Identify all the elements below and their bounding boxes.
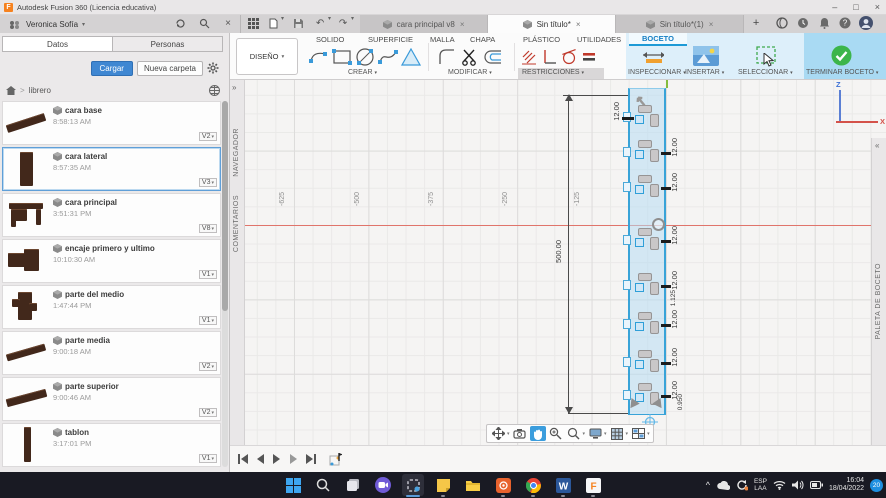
language-indicator[interactable]: ESPLAA — [754, 478, 767, 492]
search-icon[interactable] — [196, 15, 212, 31]
doc-tab-label: Sin título* — [537, 20, 571, 29]
viewcube-z-axis — [839, 90, 841, 122]
fusion360-window: F Autodesk Fusion 360 (Licencia educativ… — [0, 0, 886, 498]
version-dropdown[interactable]: V2▾ — [199, 362, 217, 371]
zoom-window-icon[interactable] — [566, 426, 582, 441]
panel-tab-navegador[interactable]: NAVEGADOR — [233, 128, 240, 177]
viewcube-x-label: X — [880, 117, 885, 126]
doc-tab-close-icon[interactable]: × — [709, 20, 714, 29]
dimension-value-bottom[interactable]: 0.950 — [677, 394, 684, 410]
restricciones-group-label[interactable]: RESTRICCIONES ▾ — [522, 69, 584, 76]
zoom-in-icon[interactable] — [548, 426, 564, 441]
version-dropdown[interactable]: V8▾ — [199, 224, 217, 233]
timeline-skip-start-button[interactable] — [236, 453, 249, 466]
caret-down-icon: ▾ — [211, 134, 214, 140]
notch-feature[interactable] — [608, 350, 674, 376]
version-dropdown[interactable]: V2▾ — [199, 132, 217, 141]
redo-icon[interactable]: ↷ — [335, 15, 351, 31]
axis-label: -250 — [502, 192, 509, 206]
dimension-value[interactable]: 12.00 — [670, 226, 679, 245]
list-item-cara-lateral[interactable]: cara lateral 8:57:35 AM V3▾ — [2, 147, 221, 191]
fusion-logo-icon: F — [4, 3, 13, 12]
user-name: Veronica Sofía — [26, 20, 78, 29]
ribbon-tab-boceto[interactable]: BOCETO — [629, 33, 687, 46]
polygon-tool-icon[interactable] — [400, 46, 422, 68]
item-time: 8:58:13 AM — [53, 117, 218, 126]
dimension-value[interactable]: 12.00 — [670, 271, 679, 290]
ribbon-tab-utilidades[interactable]: UTILIDADES — [577, 35, 621, 44]
home-icon[interactable] — [6, 86, 16, 95]
panel-scrollbar[interactable] — [222, 101, 228, 467]
undo-caret-icon[interactable]: ▾ — [328, 15, 331, 33]
taskbar-search-icon[interactable] — [312, 474, 334, 496]
ribbon-tab-plastico[interactable]: PLÁSTICO — [523, 35, 560, 44]
word-icon[interactable]: W — [552, 474, 574, 496]
panel-tab-paleta-boceto[interactable]: PALETA DE BOCETO — [875, 263, 882, 339]
component-cube-icon — [53, 428, 62, 437]
y-axis-line — [666, 80, 668, 88]
document-cube-icon — [383, 20, 392, 29]
item-name: encaje primero y ultimo — [65, 244, 155, 253]
document-cube-icon — [646, 20, 655, 29]
terminar-boceto-label[interactable]: TERMINAR BOCETO ▾ — [806, 69, 878, 76]
rectangle-tool-icon[interactable] — [331, 46, 353, 68]
doc-tab-label: cara principal v8 — [397, 20, 455, 29]
viewports-icon[interactable] — [630, 426, 646, 441]
item-name: cara lateral — [65, 152, 107, 161]
dimension-value[interactable]: 12.00 — [670, 138, 679, 157]
component-list: cara base 8:58:13 AM V2▾ cara lateral 8:… — [2, 101, 221, 469]
notch-feature[interactable] — [608, 140, 674, 166]
x-axis-line — [245, 225, 871, 226]
clock[interactable]: 16:0418/04/2022 — [829, 477, 864, 494]
close-panel-icon[interactable]: × — [220, 15, 236, 31]
constraint-perpendicular-icon[interactable] — [538, 46, 560, 68]
dimension-ext-bottom — [568, 413, 628, 414]
caret-down-icon: ▾ — [211, 318, 214, 324]
caret-down-icon: ▾ — [82, 21, 85, 28]
navigation-toolbar: ▾ ▾ ▾ ▾ ▾ — [486, 424, 654, 443]
caret-down-icon: ▾ — [489, 70, 492, 76]
list-item-tablon[interactable]: tablon 3:17:01 PM V1▾ — [2, 423, 221, 467]
minimize-button[interactable]: – — [832, 2, 837, 12]
sketch-origin-point[interactable] — [652, 218, 665, 231]
onedrive-cloud-icon[interactable] — [716, 481, 730, 490]
caret-down-icon: ▾ — [722, 70, 725, 76]
crear-group-label[interactable]: CREAR ▾ — [348, 69, 377, 76]
item-time: 3:17:01 PM — [53, 439, 218, 448]
viewcube-x-axis — [836, 121, 878, 123]
item-name: parte media — [65, 336, 110, 345]
version-dropdown[interactable]: V2▾ — [199, 408, 217, 417]
caret-down-icon: ▾ — [211, 272, 214, 278]
timeline-skip-end-button[interactable] — [304, 453, 317, 466]
timeline-play-button[interactable] — [270, 453, 283, 466]
terminar-boceto-check-icon[interactable] — [830, 44, 852, 66]
insertar-image-icon[interactable] — [693, 45, 719, 67]
list-item-parte-del-medio[interactable]: parte del medio 1:47:44 PM V1▾ — [2, 285, 221, 329]
job-status-clock-icon[interactable] — [795, 15, 811, 31]
expand-paleta-icon[interactable]: « — [875, 141, 879, 150]
file-menu-caret-icon[interactable]: ▾ — [281, 15, 284, 33]
undo-icon[interactable]: ↶ — [312, 15, 328, 31]
item-name: cara base — [65, 106, 102, 115]
component-cube-icon — [53, 290, 62, 299]
file-menu-icon[interactable] — [265, 15, 281, 31]
cargar-button[interactable]: Cargar — [91, 61, 133, 76]
extensions-icon[interactable] — [774, 15, 790, 31]
item-time: 9:00:46 AM — [53, 393, 218, 402]
doc-tab-cara-principal[interactable]: cara principal v8 × — [360, 15, 488, 33]
app-header-bar: Veronica Sofía ▾ × ▾ ↶ ▾ ↷ ▾ cara princi… — [0, 15, 886, 33]
avatar[interactable] — [858, 15, 874, 31]
display-settings-icon[interactable] — [587, 426, 603, 441]
nueva-carpeta-button[interactable]: Nueva carpeta — [137, 61, 203, 76]
maximize-button[interactable]: □ — [853, 2, 858, 12]
item-thumbnail — [3, 194, 51, 236]
ribbon-tab-malla[interactable]: MALLA — [430, 35, 455, 44]
caret-down-icon: ▾ — [582, 70, 585, 76]
item-thumbnail — [3, 240, 51, 282]
svg-text:?: ? — [843, 19, 848, 28]
circle-tool-icon[interactable] — [354, 46, 376, 68]
snipping-tool-icon[interactable] — [402, 474, 424, 496]
tab-personas[interactable]: Personas — [112, 37, 222, 51]
chat-app-icon[interactable] — [372, 474, 394, 496]
panel-tab-comentarios[interactable]: COMENTARIOS — [233, 195, 240, 252]
list-item-cara-principal[interactable]: cara principal 3:51:31 PM V8▾ — [2, 193, 221, 237]
version-dropdown[interactable]: V1▾ — [199, 454, 217, 463]
caret-down-icon: ▾ — [211, 410, 214, 416]
list-item-parte-superior[interactable]: parte superior 9:00:46 AM V2▾ — [2, 377, 221, 421]
grid-view-toggle-icon[interactable] — [209, 85, 220, 96]
component-cube-icon — [53, 152, 62, 161]
notch-feature[interactable] — [608, 312, 674, 338]
ribbon-tab-superficie[interactable]: SUPERFICIE — [368, 35, 413, 44]
doc-tab-sin-titulo-1[interactable]: Sin título*(1) × — [616, 15, 744, 33]
notch-feature[interactable] — [608, 175, 674, 201]
constraint-equal-icon[interactable] — [578, 46, 600, 68]
dimension-value[interactable]: 12.00 — [670, 348, 679, 367]
pan-hand-icon[interactable] — [530, 426, 546, 441]
item-thumbnail — [3, 424, 51, 466]
diseno-workspace-button[interactable]: DISEÑO▾ — [236, 38, 298, 75]
item-time: 9:00:18 AM — [53, 347, 218, 356]
breadcrumb: > librero — [6, 83, 220, 97]
ribbon-tab-chapa[interactable]: CHAPA — [470, 35, 495, 44]
redo-caret-icon[interactable]: ▾ — [351, 15, 354, 33]
dimension-value-gap[interactable]: 1.125 — [670, 290, 677, 306]
ribbon-tab-solido[interactable]: SOLIDO — [316, 35, 344, 44]
constraint-hatch-icon[interactable] — [518, 46, 540, 68]
caret-down-icon: ▾ — [211, 180, 214, 186]
list-item-cara-base[interactable]: cara base 8:58:13 AM V2▾ — [2, 101, 221, 145]
inspeccionar-measure-icon[interactable] — [642, 47, 664, 69]
component-cube-icon — [53, 106, 62, 115]
sticky-notes-icon[interactable] — [432, 474, 454, 496]
version-dropdown[interactable]: V1▾ — [199, 316, 217, 325]
breadcrumb-sep-icon: > — [20, 86, 25, 95]
dimension-arrow-bottom — [565, 407, 573, 414]
timeline-bar — [230, 445, 886, 472]
item-name: cara principal — [65, 198, 117, 207]
version-dropdown[interactable]: V3▾ — [199, 178, 217, 187]
timeline-step-forward-button[interactable] — [287, 453, 300, 466]
file-explorer-icon[interactable] — [462, 474, 484, 496]
caret-down-icon: ▾ — [876, 70, 879, 76]
tab-datos[interactable]: Datos — [3, 37, 112, 51]
fusion-glyph: F — [590, 481, 596, 492]
item-time: 3:51:31 PM — [53, 209, 218, 218]
window-title: Autodesk Fusion 360 (Licencia educativa) — [17, 3, 156, 12]
help-icon[interactable]: ? — [837, 15, 853, 31]
fusion360-taskbar-icon[interactable]: F — [582, 474, 604, 496]
axis-label: -500 — [354, 192, 361, 206]
list-item-parte-media[interactable]: parte media 9:00:18 AM V2▾ — [2, 331, 221, 375]
insertar-group-label[interactable]: INSERTAR ▾ — [685, 69, 724, 76]
caret-down-icon: ▾ — [282, 54, 285, 60]
dimension-arrow-top — [565, 94, 573, 101]
mouse-cursor — [763, 53, 774, 68]
pan-orbit-icon[interactable] — [490, 426, 506, 441]
doc-tab-close-icon[interactable]: × — [576, 20, 581, 29]
caret-down-icon: ▾ — [211, 456, 214, 462]
item-thumbnail — [3, 332, 51, 374]
task-view-icon[interactable] — [342, 474, 364, 496]
dimension-value[interactable]: 12.00 — [612, 102, 621, 121]
trim-scissors-icon[interactable] — [459, 46, 481, 68]
sketch-canvas[interactable]: » NAVEGADOR COMENTARIOS « PALETA DE BOCE… — [230, 80, 886, 445]
save-icon[interactable] — [290, 15, 306, 31]
viewcube-z-label: Z — [836, 80, 841, 89]
seleccionar-group-label[interactable]: SELECCIONAR ▾ — [738, 69, 793, 76]
dimension-line-500[interactable] — [568, 95, 569, 413]
doc-tab-sin-titulo[interactable]: Sin título* × — [488, 15, 616, 33]
component-cube-icon — [53, 198, 62, 207]
breadcrumb-folder[interactable]: librero — [29, 86, 51, 95]
battery-icon[interactable] — [810, 481, 823, 489]
ribbon: DISEÑO▾ SOLIDO SUPERFICIE MALLA CHAPA PL… — [230, 33, 886, 80]
timeline-sketch-feature-icon[interactable] — [329, 453, 342, 466]
item-name: parte del medio — [65, 290, 124, 299]
refresh-icon[interactable] — [172, 15, 188, 31]
version-dropdown[interactable]: V1▾ — [199, 270, 217, 279]
tray-chevron-up-icon[interactable]: ^ — [706, 480, 710, 490]
left-collapsed-panels: » NAVEGADOR COMENTARIOS — [230, 80, 245, 445]
item-name: parte superior — [65, 382, 119, 391]
item-thumbnail — [3, 378, 51, 420]
screen-share-app-icon[interactable] — [492, 474, 514, 496]
volume-icon[interactable] — [792, 480, 804, 490]
axis-label: -625 — [279, 192, 286, 206]
item-time: 1:47:44 PM — [53, 301, 218, 310]
chrome-icon[interactable] — [522, 474, 544, 496]
sync-icon[interactable] — [736, 479, 748, 491]
system-tray: ^ ESPLAA 16:0418/04/2022 20 — [706, 472, 883, 498]
item-thumbnail — [3, 286, 51, 328]
notification-badge[interactable]: 20 — [870, 479, 883, 492]
caret-down-icon: ▾ — [374, 70, 377, 76]
component-cube-icon — [53, 336, 62, 345]
timeline-step-back-button[interactable] — [253, 453, 266, 466]
grid-settings-icon[interactable] — [609, 426, 625, 441]
item-thumbnail — [3, 148, 51, 190]
viewcube[interactable]: Z FRONTAL X — [828, 82, 886, 130]
constraint-tangent-icon[interactable] — [558, 46, 580, 68]
notch-feature[interactable] — [608, 228, 674, 254]
spline-tool-icon[interactable] — [377, 46, 399, 68]
new-tab-button[interactable]: + — [748, 15, 764, 31]
show-data-panel-icon[interactable] — [245, 15, 261, 31]
dimension-value[interactable]: 12.00 — [670, 310, 679, 329]
data-panel: Datos Personas Cargar Nueva carpeta > li… — [0, 33, 230, 472]
doc-tab-close-icon[interactable]: × — [460, 20, 465, 29]
inspeccionar-group-label[interactable]: INSPECCIONAR ▾ — [628, 69, 686, 76]
dimension-value-height[interactable]: 500.00 — [554, 240, 563, 263]
expand-panels-icon[interactable]: » — [232, 83, 236, 92]
dimension-value[interactable]: 12.00 — [670, 173, 679, 192]
caret-down-icon: ▾ — [790, 70, 793, 76]
doc-tab-label: Sin título*(1) — [660, 20, 704, 29]
caret-down-icon: ▾ — [211, 226, 214, 232]
component-cube-icon — [53, 244, 62, 253]
fillet-tool-icon[interactable] — [436, 46, 458, 68]
item-time: 10:10:30 AM — [53, 255, 218, 264]
item-name: tablon — [65, 428, 89, 437]
axis-label: -125 — [574, 192, 581, 206]
right-collapsed-panel: « PALETA DE BOCETO — [871, 138, 886, 445]
data-settings-gear-icon[interactable] — [207, 62, 219, 74]
line-tool-icon[interactable] — [308, 46, 330, 68]
document-cube-icon — [523, 20, 532, 29]
caret-down-icon: ▾ — [211, 364, 214, 370]
word-glyph: W — [558, 481, 568, 492]
list-item-encaje[interactable]: encaje primero y ultimo 10:10:30 AM V1▾ — [2, 239, 221, 283]
item-time: 8:57:35 AM — [53, 163, 218, 172]
notifications-bell-icon[interactable] — [816, 15, 832, 31]
wifi-icon[interactable] — [773, 480, 786, 490]
item-thumbnail — [3, 102, 51, 144]
modificar-group-label[interactable]: MODIFICAR ▾ — [448, 69, 492, 76]
axis-label: -375 — [428, 192, 435, 206]
start-button[interactable] — [282, 474, 304, 496]
close-window-button[interactable]: × — [875, 2, 880, 12]
component-cube-icon — [53, 382, 62, 391]
title-bar: F Autodesk Fusion 360 (Licencia educativ… — [0, 0, 886, 15]
orbit-camera-icon[interactable] — [512, 426, 528, 441]
people-icon — [6, 16, 22, 32]
notch-feature[interactable] — [608, 273, 674, 299]
user-menu[interactable]: Veronica Sofía ▾ — [0, 15, 170, 33]
offset-tool-icon[interactable] — [482, 46, 504, 68]
